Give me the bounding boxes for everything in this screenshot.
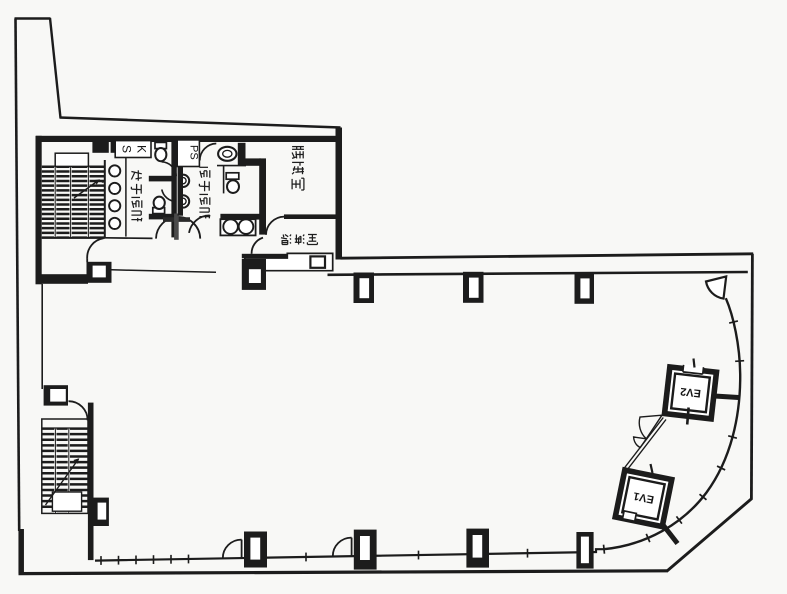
svg-text:PS: PS bbox=[188, 145, 200, 160]
svg-text:EV2: EV2 bbox=[680, 385, 702, 399]
svg-text:K: K bbox=[135, 145, 149, 153]
svg-text:S: S bbox=[120, 145, 134, 153]
